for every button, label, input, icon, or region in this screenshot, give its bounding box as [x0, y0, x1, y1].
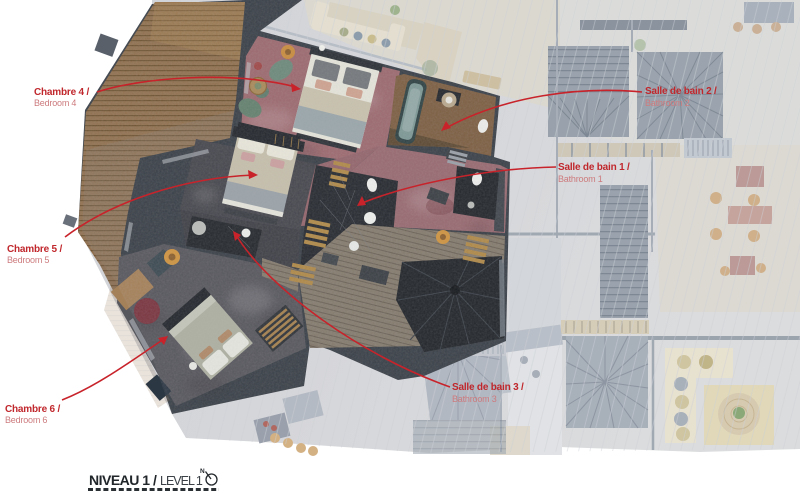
svg-text:Bathroom 3: Bathroom 3 — [452, 394, 497, 404]
svg-text:Salle de bain 3 /: Salle de bain 3 / — [452, 382, 524, 393]
svg-text:Salle de bain 2 /: Salle de bain 2 / — [645, 86, 717, 97]
svg-text:NIVEAU 1 /: NIVEAU 1 / — [89, 472, 157, 488]
svg-text:N: N — [200, 468, 205, 475]
svg-text:Chambre 4 /: Chambre 4 / — [34, 87, 89, 98]
svg-text:LEVEL 1: LEVEL 1 — [160, 474, 203, 488]
svg-text:Bedroom 6: Bedroom 6 — [5, 415, 47, 425]
svg-text:Chambre 5 /: Chambre 5 / — [7, 244, 62, 255]
svg-text:Bedroom 5: Bedroom 5 — [7, 255, 49, 265]
svg-text:Bathroom 1: Bathroom 1 — [558, 174, 603, 184]
svg-text:Salle de bain 1 /: Salle de bain 1 / — [558, 162, 630, 173]
svg-text:Bedroom 4: Bedroom 4 — [34, 98, 76, 108]
svg-text:Chambre 6 /: Chambre 6 / — [5, 404, 60, 415]
svg-text:Bathroom 2: Bathroom 2 — [645, 98, 690, 108]
